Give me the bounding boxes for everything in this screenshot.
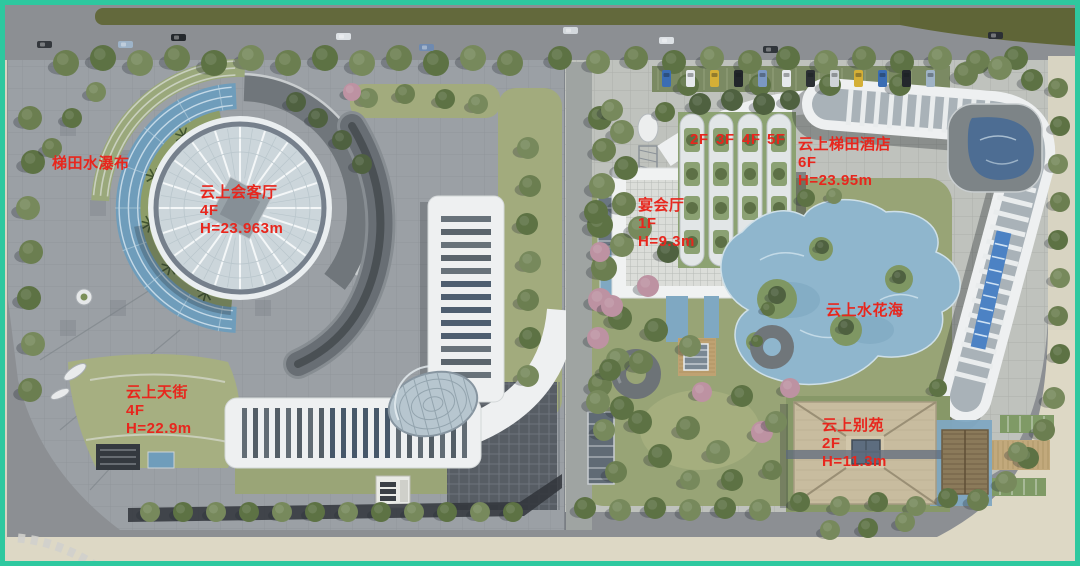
label-text: 梯田水瀑布	[52, 155, 130, 173]
label-height: H=22.9m	[126, 420, 192, 438]
label-text: 云上别苑	[822, 417, 887, 435]
label-floors: 4F	[200, 202, 283, 220]
label-cloud-terrace-hotel: 云上梯田酒店 6F H=23.95m	[798, 136, 891, 190]
label-wing-4f: 4F	[742, 131, 761, 149]
label-cloud-villa: 云上别苑 2F H=11.3m	[822, 417, 887, 471]
label-floors: 4F	[126, 402, 192, 420]
label-text: 宴会厅	[638, 197, 695, 215]
label-cloud-water-flower-sea: 云上水花海	[826, 302, 904, 320]
label-terraced-waterfall: 梯田水瀑布	[52, 155, 130, 173]
label-wing-3f: 3F	[716, 131, 735, 149]
label-height: H=11.3m	[822, 453, 887, 471]
label-wing-2f: 2F	[690, 131, 709, 149]
label-height: H=23.963m	[200, 220, 283, 238]
label-text: 云上梯田酒店	[798, 136, 891, 154]
label-cloud-reception-hall: 云上会客厅 4F H=23.963m	[200, 184, 283, 238]
label-floors: 2F	[822, 435, 887, 453]
label-text: 云上会客厅	[200, 184, 283, 202]
label-text: 云上水花海	[826, 302, 904, 320]
label-cloud-sky-street: 云上天街 4F H=22.9m	[126, 384, 192, 438]
label-height: H=23.95m	[798, 172, 891, 190]
site-plan-image: 梯田水瀑布 云上会客厅 4F H=23.963m 云上天街 4F H=22.9m…	[0, 0, 1080, 566]
label-floors: 1F	[638, 215, 695, 233]
label-wing-5f: 5F	[767, 131, 786, 149]
label-text: 云上天街	[126, 384, 192, 402]
label-floors: 6F	[798, 154, 891, 172]
plan-annotations: 梯田水瀑布 云上会客厅 4F H=23.963m 云上天街 4F H=22.9m…	[0, 0, 1080, 566]
label-height: H=9.3m	[638, 233, 695, 251]
label-banquet-hall: 宴会厅 1F H=9.3m	[638, 197, 695, 251]
